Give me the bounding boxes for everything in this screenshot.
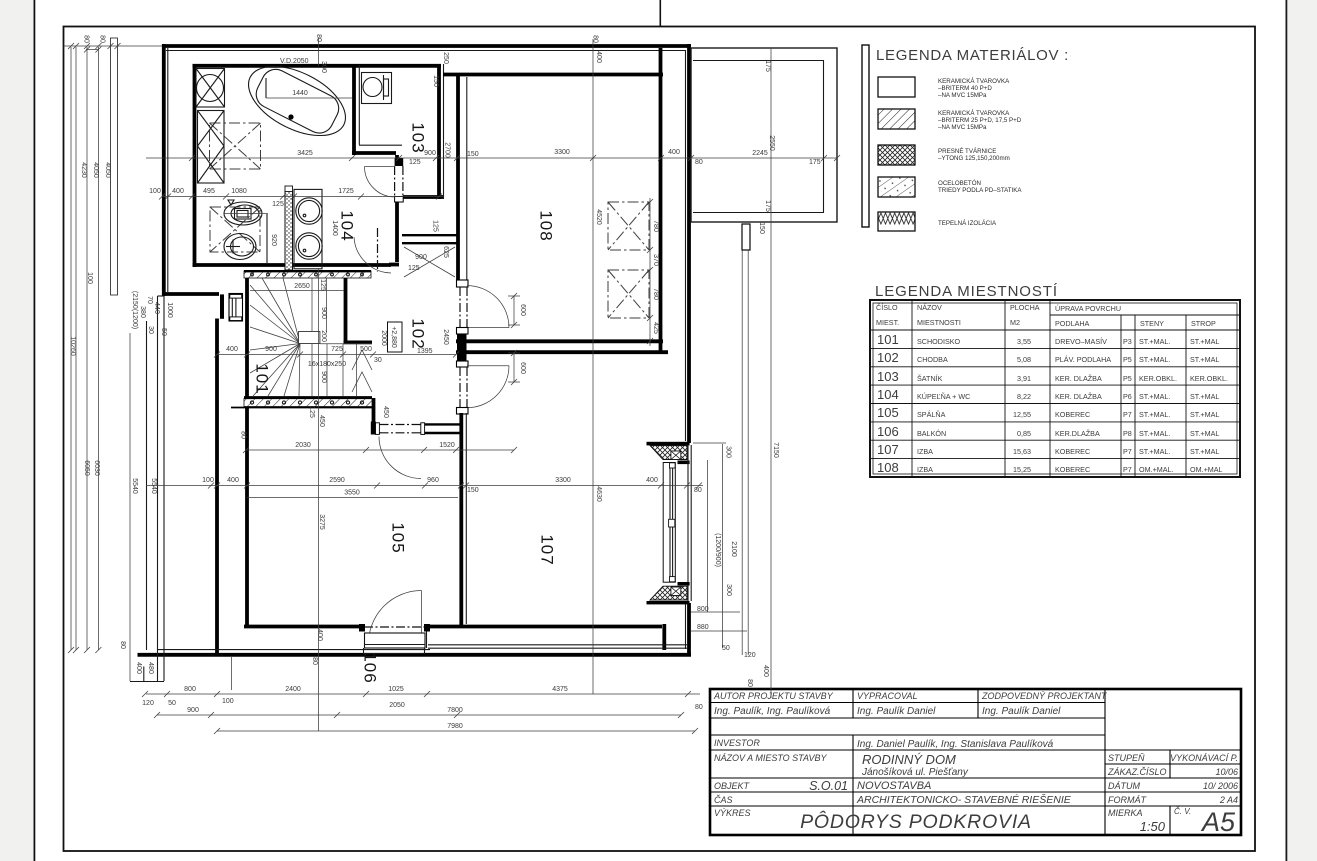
svg-text:2590: 2590 xyxy=(329,477,345,484)
svg-text:12,55: 12,55 xyxy=(1013,410,1031,419)
svg-text:ST.+MAL: ST.+MAL xyxy=(1190,392,1219,401)
svg-text:1440: 1440 xyxy=(292,90,308,97)
svg-text:3300: 3300 xyxy=(555,477,571,484)
svg-text:1000: 1000 xyxy=(166,302,173,318)
svg-text:102: 102 xyxy=(409,318,428,349)
svg-text:1395: 1395 xyxy=(417,348,433,355)
svg-text:INVESTOR: INVESTOR xyxy=(714,738,760,748)
svg-text:ST.+MAL.: ST.+MAL. xyxy=(1139,447,1170,456)
svg-text:175: 175 xyxy=(764,200,771,212)
svg-text:2400: 2400 xyxy=(285,686,301,693)
svg-text:IZBA: IZBA xyxy=(917,447,933,456)
svg-text:KOBEREC: KOBEREC xyxy=(1055,465,1090,474)
svg-text:OCELOBETÓN: OCELOBETÓN xyxy=(938,180,981,187)
svg-text:100: 100 xyxy=(149,188,161,195)
svg-text:80: 80 xyxy=(694,487,702,494)
svg-text:2450: 2450 xyxy=(442,329,449,345)
svg-text:1520: 1520 xyxy=(439,442,455,449)
svg-text:V.D.2050: V.D.2050 xyxy=(280,58,309,65)
svg-text:3,55: 3,55 xyxy=(1017,337,1031,346)
svg-text:P7: P7 xyxy=(1123,465,1132,474)
svg-text:1080: 1080 xyxy=(231,188,247,195)
svg-text:16x180x250: 16x180x250 xyxy=(308,361,346,368)
svg-text:780: 780 xyxy=(652,220,659,232)
svg-text:120: 120 xyxy=(744,652,756,659)
svg-text:ZÁKAZ.ČÍSLO: ZÁKAZ.ČÍSLO xyxy=(1107,767,1167,777)
svg-text:900: 900 xyxy=(265,346,277,353)
svg-text:600: 600 xyxy=(519,362,526,374)
svg-text:101: 101 xyxy=(877,332,899,347)
svg-text:P8: P8 xyxy=(1123,429,1132,438)
svg-text:80: 80 xyxy=(99,35,106,43)
svg-text:P7: P7 xyxy=(1123,410,1132,419)
svg-text:ZODPOVEDNÝ PROJEKTANT: ZODPOVEDNÝ PROJEKTANT xyxy=(981,691,1108,701)
svg-text:4050: 4050 xyxy=(104,162,111,178)
svg-text:KER.OBKL.: KER.OBKL. xyxy=(1139,374,1177,383)
svg-text:KER. DLAŽBA: KER. DLAŽBA xyxy=(1055,392,1102,401)
svg-text:107: 107 xyxy=(538,534,557,565)
svg-text:900: 900 xyxy=(320,307,327,319)
svg-text:175: 175 xyxy=(809,159,821,166)
svg-text:300: 300 xyxy=(320,61,327,73)
svg-text:AUTOR PROJEKTU STAVBY: AUTOR PROJEKTU STAVBY xyxy=(713,691,834,701)
svg-text:PÔDORYS PODKROVIA: PÔDORYS PODKROVIA xyxy=(800,810,1032,833)
svg-text:Ing. Paulík, Ing. Paulíková: Ing. Paulík, Ing. Paulíková xyxy=(714,706,831,717)
svg-text:108: 108 xyxy=(877,460,899,475)
svg-text:PODLAHA: PODLAHA xyxy=(1055,319,1090,328)
svg-text:MIERKA: MIERKA xyxy=(1108,808,1143,818)
svg-text:7150: 7150 xyxy=(772,442,779,458)
svg-text:10/06: 10/06 xyxy=(1215,767,1238,777)
svg-text:2030: 2030 xyxy=(295,442,311,449)
svg-text:P5: P5 xyxy=(1123,355,1132,364)
svg-text:15,63: 15,63 xyxy=(1013,447,1031,456)
svg-text:10/ 2006: 10/ 2006 xyxy=(1203,781,1238,791)
svg-text:120: 120 xyxy=(142,700,154,707)
svg-text:4230: 4230 xyxy=(80,162,87,178)
svg-text:P6: P6 xyxy=(1123,392,1132,401)
svg-text:103: 103 xyxy=(877,369,899,384)
svg-text:1725: 1725 xyxy=(338,188,354,195)
svg-text:495: 495 xyxy=(203,188,215,195)
svg-text:30: 30 xyxy=(147,326,154,334)
svg-text:NOVOSTAVBA: NOVOSTAVBA xyxy=(857,780,931,792)
svg-text:Č. V.: Č. V. xyxy=(1174,807,1191,816)
svg-text:70: 70 xyxy=(146,296,153,304)
svg-text:108: 108 xyxy=(537,210,556,241)
svg-text:VÝKRES: VÝKRES xyxy=(714,808,751,818)
svg-text:101: 101 xyxy=(253,363,272,394)
svg-text:150: 150 xyxy=(467,151,479,158)
svg-text:ST.+MAL: ST.+MAL xyxy=(1190,429,1219,438)
svg-text:1400: 1400 xyxy=(331,220,338,236)
svg-text:MIESTNOSTI: MIESTNOSTI xyxy=(917,318,961,327)
svg-text:Ing. Paulík Daniel: Ing. Paulík Daniel xyxy=(982,706,1061,717)
svg-text:ČÍSLO: ČÍSLO xyxy=(876,303,898,312)
svg-text:400: 400 xyxy=(135,662,142,674)
svg-text:103: 103 xyxy=(409,122,428,153)
svg-text:1025: 1025 xyxy=(388,686,404,693)
svg-text:10260: 10260 xyxy=(69,336,76,356)
svg-text:2245: 2245 xyxy=(752,150,768,157)
svg-text:7800: 7800 xyxy=(447,707,463,714)
svg-text:NÁZOV: NÁZOV xyxy=(917,303,942,312)
svg-text:50: 50 xyxy=(168,700,176,707)
svg-text:ST.+MAL: ST.+MAL xyxy=(1190,447,1219,456)
svg-text:2700: 2700 xyxy=(444,142,451,158)
svg-text:50: 50 xyxy=(160,328,167,336)
svg-text:ČAS: ČAS xyxy=(714,795,733,805)
svg-text:150: 150 xyxy=(432,75,439,87)
svg-text:LEGENDA MIESTNOSTÍ: LEGENDA MIESTNOSTÍ xyxy=(875,283,1058,300)
svg-text:2550: 2550 xyxy=(768,135,775,151)
svg-text:2000: 2000 xyxy=(380,330,387,346)
svg-text:KER.OBKL.: KER.OBKL. xyxy=(1190,374,1228,383)
svg-text:MIEST.: MIEST. xyxy=(876,318,899,327)
svg-text:3275: 3275 xyxy=(318,514,325,530)
svg-text:150: 150 xyxy=(758,222,765,234)
svg-text:125: 125 xyxy=(308,406,315,418)
svg-text:80: 80 xyxy=(83,35,90,43)
svg-text:Jánošíková ul. Piešťany: Jánošíková ul. Piešťany xyxy=(861,767,969,778)
svg-text:KÚPEĽŇA + WC: KÚPEĽŇA + WC xyxy=(917,392,970,401)
svg-text:FORMÁT: FORMÁT xyxy=(1108,795,1147,805)
svg-text:80: 80 xyxy=(311,657,318,665)
svg-text:2100: 2100 xyxy=(730,541,737,557)
svg-text:STENY: STENY xyxy=(1140,319,1164,328)
svg-text:400: 400 xyxy=(595,51,602,63)
svg-text:125: 125 xyxy=(319,279,326,291)
svg-text:SCHODISKO: SCHODISKO xyxy=(917,337,961,346)
svg-text:6050: 6050 xyxy=(83,460,90,476)
svg-text:3425: 3425 xyxy=(297,150,313,157)
svg-text:–BRITERM 25 P+D, 17,5 P+D: –BRITERM 25 P+D, 17,5 P+D xyxy=(938,117,1022,124)
svg-text:125: 125 xyxy=(409,159,421,166)
svg-text:800: 800 xyxy=(697,606,709,613)
svg-text:300: 300 xyxy=(725,446,732,458)
svg-text:DÁTUM: DÁTUM xyxy=(1108,781,1140,791)
svg-text:3300: 3300 xyxy=(554,149,570,156)
svg-text:80: 80 xyxy=(695,159,703,166)
svg-text:104: 104 xyxy=(338,210,357,241)
svg-text:–BRITERM 40 P+D: –BRITERM 40 P+D xyxy=(938,85,992,92)
svg-text:PLÁV. PODLAHA: PLÁV. PODLAHA xyxy=(1055,355,1111,364)
svg-text:900: 900 xyxy=(187,707,199,714)
svg-text:125: 125 xyxy=(408,265,420,272)
svg-text:480: 480 xyxy=(147,662,154,674)
svg-text:ST.+MAL: ST.+MAL xyxy=(1190,410,1219,419)
svg-text:OM.+MAL: OM.+MAL xyxy=(1190,465,1223,474)
svg-text:OBJEKT: OBJEKT xyxy=(714,781,751,791)
svg-text:105: 105 xyxy=(389,522,408,553)
svg-text:105: 105 xyxy=(877,405,899,420)
svg-text:100: 100 xyxy=(202,477,214,484)
svg-text:4630: 4630 xyxy=(595,486,602,502)
svg-text:200: 200 xyxy=(320,330,327,342)
svg-text:LEGENDA MATERIÁLOV :: LEGENDA MATERIÁLOV : xyxy=(876,47,1069,64)
svg-text:(2150(1200): (2150(1200) xyxy=(131,291,138,329)
svg-text:IZBA: IZBA xyxy=(917,465,933,474)
svg-text:425: 425 xyxy=(652,322,659,334)
svg-text:STUPEŇ: STUPEŇ xyxy=(1108,753,1145,763)
svg-text:600: 600 xyxy=(519,304,526,316)
svg-text:2650: 2650 xyxy=(294,283,310,290)
svg-text:500: 500 xyxy=(360,346,372,353)
svg-text:400: 400 xyxy=(316,629,323,641)
svg-text:80: 80 xyxy=(695,704,703,711)
svg-text:80: 80 xyxy=(119,641,126,649)
svg-text:+2,880: +2,880 xyxy=(390,326,397,348)
svg-text:1:50: 1:50 xyxy=(1140,819,1166,834)
svg-text:960: 960 xyxy=(427,477,439,484)
svg-text:ŠATNÍK: ŠATNÍK xyxy=(917,374,943,383)
svg-text:80: 80 xyxy=(240,431,247,439)
svg-text:370: 370 xyxy=(652,254,659,266)
svg-text:30: 30 xyxy=(374,357,382,364)
svg-text:(1200/900): (1200/900) xyxy=(714,533,721,567)
svg-text:ARCHITEKTONICKO- STAVEBNÉ RIEŠ: ARCHITEKTONICKO- STAVEBNÉ RIEŠENIE xyxy=(856,793,1072,806)
svg-text:175: 175 xyxy=(764,60,771,72)
svg-text:900: 900 xyxy=(320,371,327,383)
svg-text:400: 400 xyxy=(762,665,769,677)
svg-text:400: 400 xyxy=(646,477,658,484)
svg-text:102: 102 xyxy=(877,350,899,365)
svg-text:–YTONG 125,150,200mm: –YTONG 125,150,200mm xyxy=(938,155,1010,162)
svg-text:4520: 4520 xyxy=(595,209,602,225)
svg-text:5540: 5540 xyxy=(131,478,138,494)
svg-text:NÁZOV A MIESTO STAVBY: NÁZOV A MIESTO STAVBY xyxy=(714,753,828,763)
svg-text:Ing. Paulík Daniel: Ing. Paulík Daniel xyxy=(857,706,936,717)
svg-text:ST.+MAL.: ST.+MAL. xyxy=(1139,410,1170,419)
svg-text:P3: P3 xyxy=(1123,337,1132,346)
svg-text:2 A4: 2 A4 xyxy=(1219,795,1238,805)
svg-text:S.O.01: S.O.01 xyxy=(809,779,848,793)
svg-text:106: 106 xyxy=(361,652,380,683)
svg-text:M2: M2 xyxy=(1010,318,1020,327)
svg-text:CHODBA: CHODBA xyxy=(917,355,948,364)
svg-text:BALKÓN: BALKÓN xyxy=(917,429,946,438)
svg-text:KERAMICKÁ TVAROVKA: KERAMICKÁ TVAROVKA xyxy=(938,78,1010,85)
svg-text:50: 50 xyxy=(722,645,730,652)
svg-text:800: 800 xyxy=(184,686,196,693)
svg-text:KER. DLAŽBA: KER. DLAŽBA xyxy=(1055,374,1102,383)
svg-text:PLOCHA: PLOCHA xyxy=(1010,303,1040,312)
svg-text:ST.+MAL.: ST.+MAL. xyxy=(1139,429,1170,438)
svg-text:–NA MVC 15MPa: –NA MVC 15MPa xyxy=(938,92,987,99)
svg-text:A5: A5 xyxy=(1200,807,1236,837)
svg-text:ÚPRAVA POVRCHU: ÚPRAVA POVRCHU xyxy=(1055,304,1121,313)
svg-text:SPÁLŇA: SPÁLŇA xyxy=(917,410,946,419)
svg-text:TRIEDY PODLA PD–STATIKA: TRIEDY PODLA PD–STATIKA xyxy=(938,187,1022,194)
svg-text:TEPELNÁ IZOLÁCIA: TEPELNÁ IZOLÁCIA xyxy=(938,220,997,227)
svg-text:P5: P5 xyxy=(1123,374,1132,383)
svg-text:STROP: STROP xyxy=(1191,319,1216,328)
svg-text:ST.+MAL.: ST.+MAL. xyxy=(1139,337,1170,346)
svg-text:125: 125 xyxy=(432,220,439,232)
svg-text:KER.DLAŽBA: KER.DLAŽBA xyxy=(1055,429,1100,438)
svg-text:900: 900 xyxy=(424,150,436,157)
svg-text:725: 725 xyxy=(331,346,343,353)
svg-text:Ing. Daniel Paulík, Ing. Stani: Ing. Daniel Paulík, Ing. Stanislava Paul… xyxy=(857,739,1054,750)
svg-text:3,91: 3,91 xyxy=(1017,374,1031,383)
svg-text:107: 107 xyxy=(877,442,899,457)
svg-text:2050: 2050 xyxy=(389,702,405,709)
svg-text:780: 780 xyxy=(652,288,659,300)
svg-text:KERAMICKÁ TVAROVKA: KERAMICKÁ TVAROVKA xyxy=(938,110,1010,117)
svg-text:VYKONÁVACÍ P.: VYKONÁVACÍ P. xyxy=(1170,753,1238,763)
svg-text:104: 104 xyxy=(877,387,899,402)
svg-text:KOBEREC: KOBEREC xyxy=(1055,410,1090,419)
svg-text:6030: 6030 xyxy=(93,460,100,476)
svg-text:PRESNÉ TVÁRNICE: PRESNÉ TVÁRNICE xyxy=(938,148,996,155)
svg-text:80: 80 xyxy=(746,679,753,687)
svg-text:7980: 7980 xyxy=(447,723,463,730)
svg-text:380: 380 xyxy=(139,306,146,318)
svg-text:106: 106 xyxy=(877,424,899,439)
svg-text:920: 920 xyxy=(270,234,277,246)
svg-text:400: 400 xyxy=(172,188,184,195)
svg-text:0,85: 0,85 xyxy=(1017,429,1031,438)
svg-text:125: 125 xyxy=(272,201,284,208)
svg-text:100: 100 xyxy=(86,272,93,284)
svg-text:450: 450 xyxy=(382,406,389,418)
svg-text:P7: P7 xyxy=(1123,447,1132,456)
svg-text:400: 400 xyxy=(226,346,238,353)
svg-text:ST.+MAL: ST.+MAL xyxy=(1190,337,1219,346)
svg-text:OM.+MAL.: OM.+MAL. xyxy=(1139,465,1174,474)
svg-text:150: 150 xyxy=(467,487,479,494)
svg-text:KOBEREC: KOBEREC xyxy=(1055,447,1090,456)
svg-text:RODINNÝ DOM: RODINNÝ DOM xyxy=(862,752,956,767)
svg-text:250: 250 xyxy=(442,52,449,64)
svg-text:440: 440 xyxy=(153,302,160,314)
svg-text:4050: 4050 xyxy=(92,162,99,178)
svg-text:5540: 5540 xyxy=(150,478,157,494)
svg-text:VYPRACOVAL: VYPRACOVAL xyxy=(857,691,918,701)
svg-text:400: 400 xyxy=(668,149,680,156)
svg-text:ST.+MAL.: ST.+MAL. xyxy=(1139,392,1170,401)
svg-text:3550: 3550 xyxy=(344,490,360,497)
svg-text:4375: 4375 xyxy=(552,686,568,693)
svg-text:ST.+MAL: ST.+MAL xyxy=(1190,355,1219,364)
svg-text:–NA MVC 15MPa: –NA MVC 15MPa xyxy=(938,124,987,131)
svg-text:400: 400 xyxy=(227,477,239,484)
svg-text:880: 880 xyxy=(697,624,709,631)
svg-text:8,22: 8,22 xyxy=(1017,392,1031,401)
svg-text:5,08: 5,08 xyxy=(1017,355,1031,364)
svg-text:80: 80 xyxy=(592,35,599,43)
svg-text:100: 100 xyxy=(222,698,234,705)
svg-text:300: 300 xyxy=(725,584,732,596)
svg-text:450: 450 xyxy=(318,415,325,427)
svg-text:625: 625 xyxy=(442,246,449,258)
svg-text:900: 900 xyxy=(415,254,427,261)
svg-text:ST.+MAL.: ST.+MAL. xyxy=(1139,355,1170,364)
svg-text:15,25: 15,25 xyxy=(1013,465,1031,474)
svg-text:DREVO–MASÍV: DREVO–MASÍV xyxy=(1055,337,1107,346)
